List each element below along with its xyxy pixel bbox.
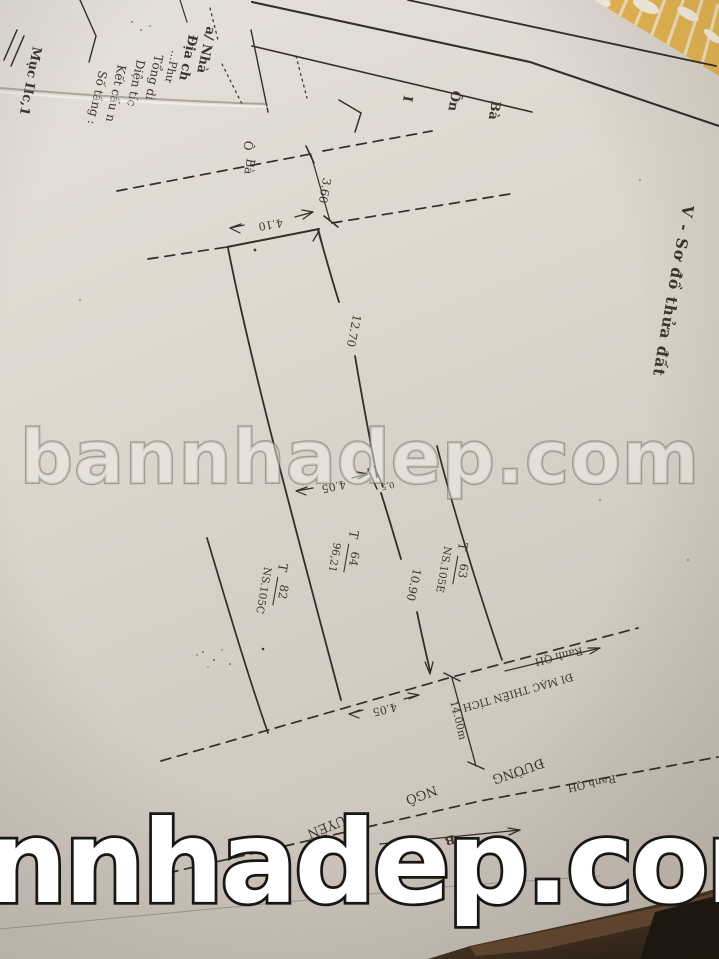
document-photo-canvas: Mục IIc,1 a/ Nhà Địa ch ...Phư Tổng di D…	[0, 0, 719, 959]
watermark-center: bannhadep.com	[20, 415, 700, 501]
photo-of-land-plot-document: Mục IIc,1 a/ Nhà Địa ch ...Phư Tổng di D…	[0, 0, 719, 959]
watermark-bottom: nnhadep.com	[0, 796, 719, 929]
